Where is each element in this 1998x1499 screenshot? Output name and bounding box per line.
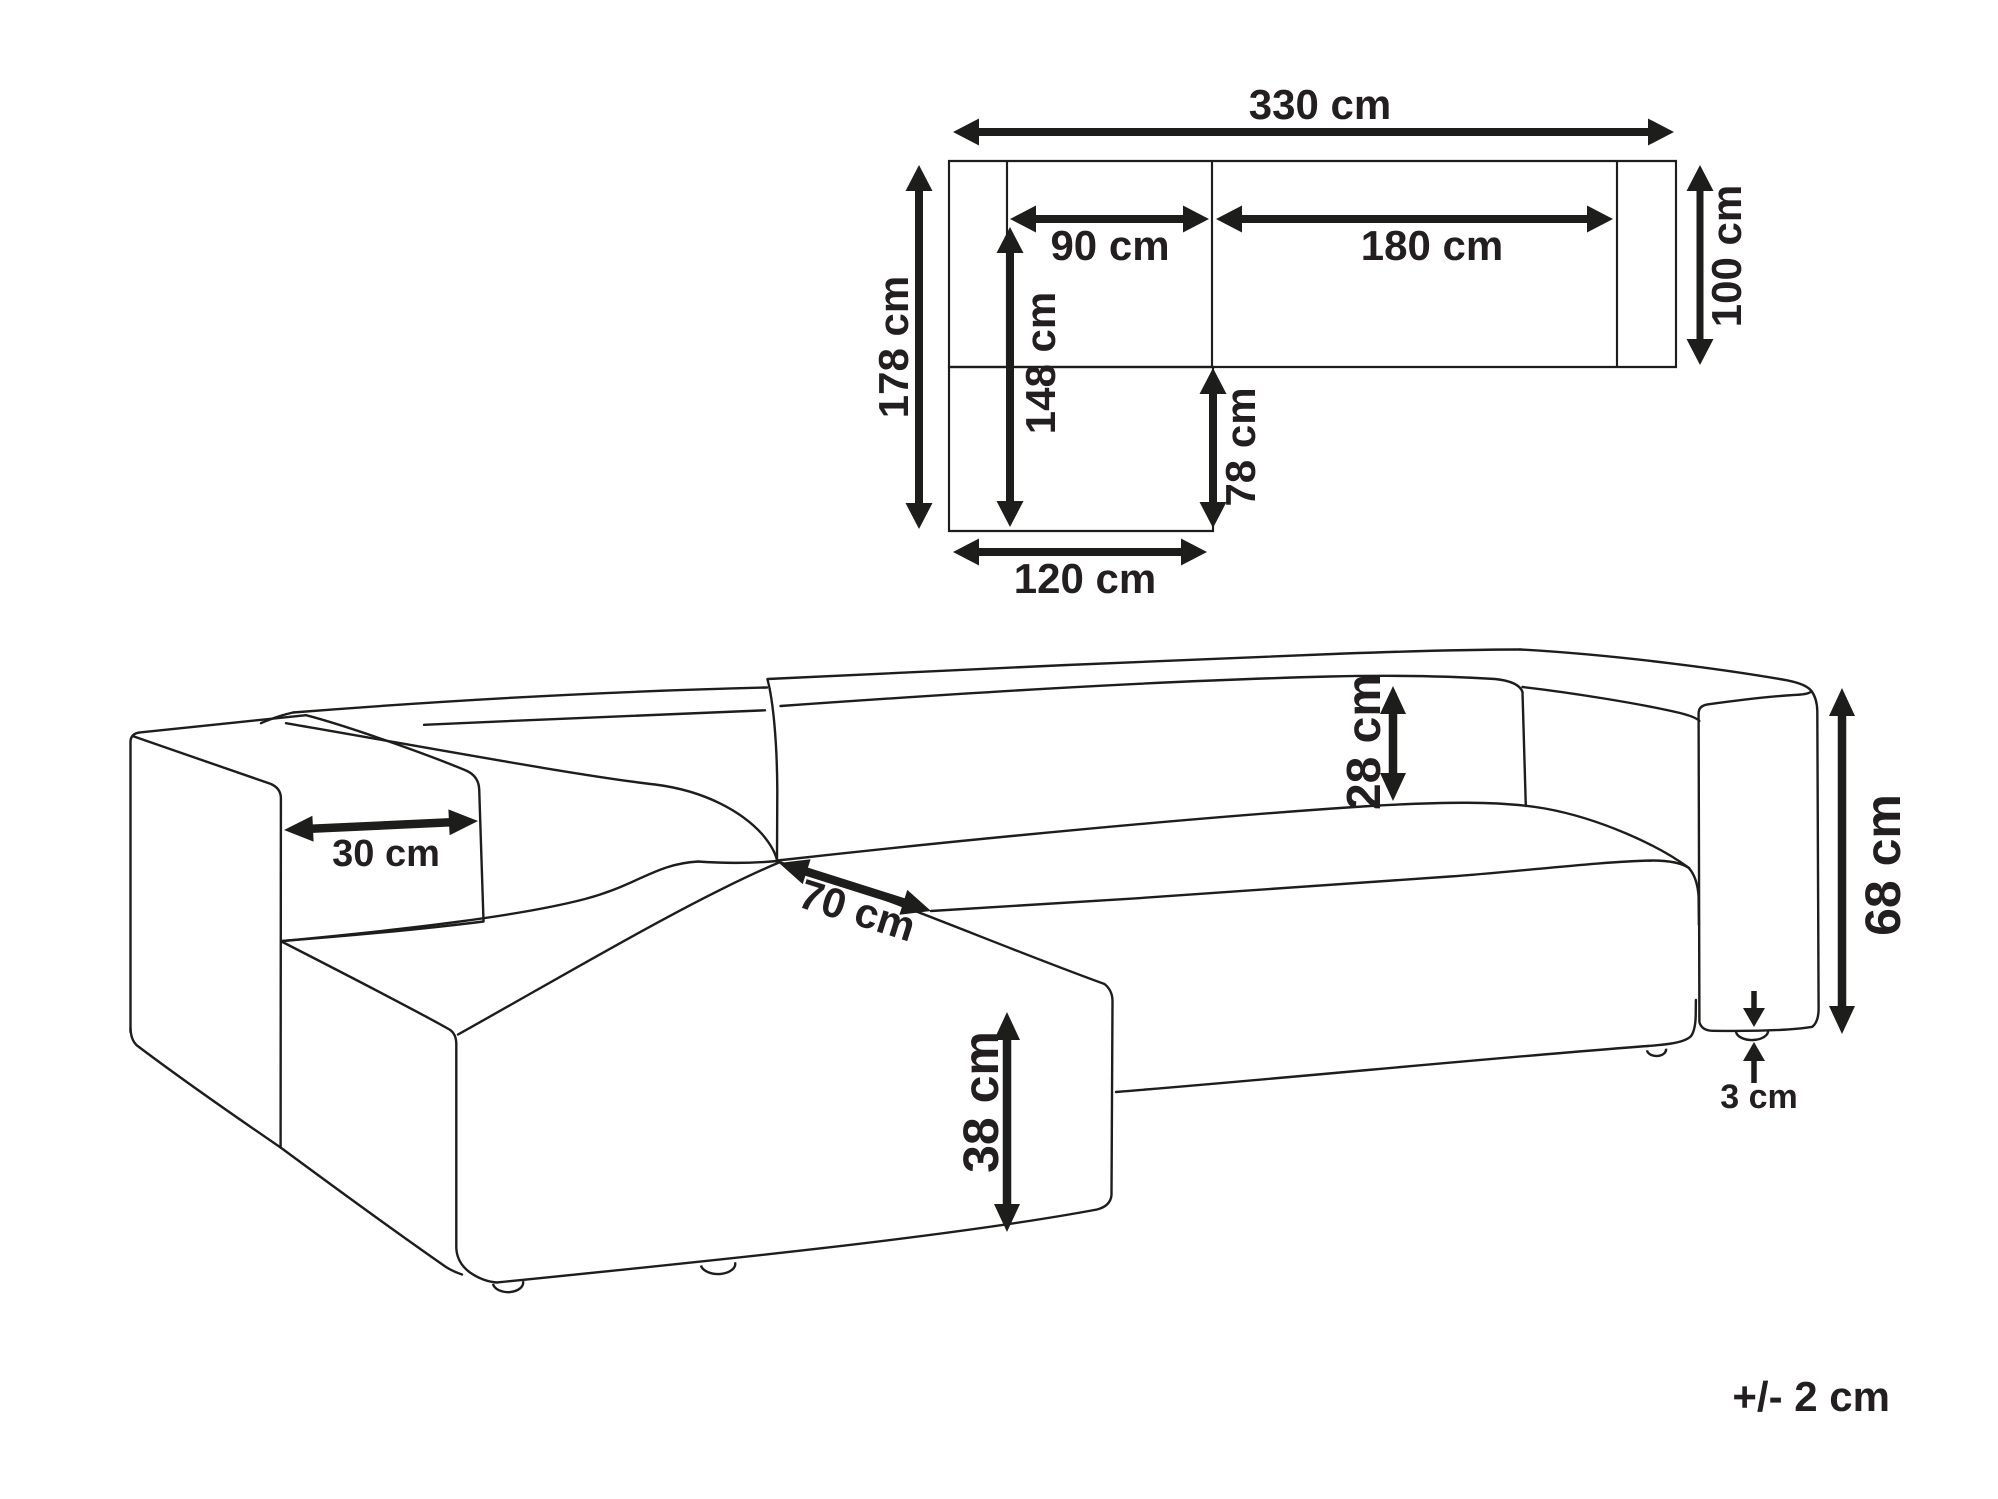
svg-text:180 cm: 180 cm (1361, 222, 1503, 269)
svg-text:28 cm: 28 cm (1338, 674, 1391, 810)
svg-text:68 cm: 68 cm (1855, 794, 1911, 936)
svg-text:90 cm: 90 cm (1050, 222, 1169, 269)
svg-text:100 cm: 100 cm (1703, 185, 1750, 327)
svg-text:30 cm: 30 cm (332, 833, 440, 875)
svg-text:178 cm: 178 cm (870, 276, 917, 418)
svg-text:78 cm: 78 cm (1217, 387, 1264, 506)
svg-text:148 cm: 148 cm (1017, 292, 1064, 434)
svg-text:+/- 2 cm: +/- 2 cm (1732, 1373, 1890, 1420)
svg-text:330 cm: 330 cm (1249, 81, 1391, 128)
svg-text:120 cm: 120 cm (1014, 555, 1156, 602)
svg-text:38 cm: 38 cm (953, 1031, 1009, 1173)
svg-text:3 cm: 3 cm (1720, 1078, 1798, 1116)
